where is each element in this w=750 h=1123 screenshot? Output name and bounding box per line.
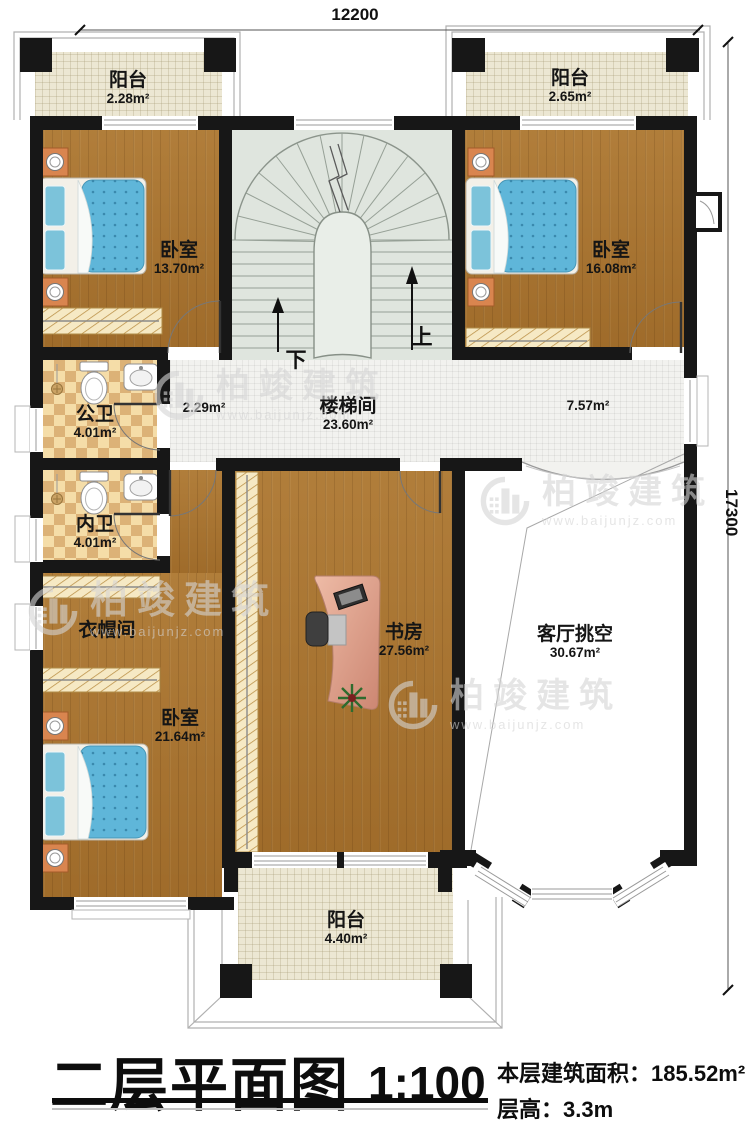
- window: [72, 897, 190, 919]
- window: [520, 116, 636, 130]
- bed-icon: [40, 744, 148, 840]
- title-underline-thin: [52, 1108, 488, 1110]
- title-underline-thick: [52, 1098, 488, 1103]
- room-label-balcony-bottom: 阳台 4.40m²: [325, 910, 368, 946]
- dimension-width: 12200: [331, 5, 378, 25]
- floor-area-value: 185.52m²: [651, 1061, 745, 1086]
- room-label-hall-west: 2.29m²: [183, 400, 226, 415]
- room-label-bedroom-tr: 卧室 16.08m²: [586, 240, 636, 276]
- sliding-door: [252, 852, 428, 868]
- sink-icon: [124, 474, 158, 500]
- plant-icon: [338, 684, 366, 712]
- room-label-stairwell: 楼梯间 23.60m²: [319, 396, 376, 432]
- chair-back-icon: [328, 615, 346, 645]
- window: [15, 406, 43, 452]
- dimension-lines: [75, 25, 733, 995]
- door-arc: [630, 302, 681, 353]
- floor-height-label: 层高：: [497, 1097, 563, 1122]
- toilet-icon: [80, 472, 108, 514]
- door-arc: [114, 404, 160, 450]
- room-label-bath-public: 公卫 4.01m²: [74, 404, 117, 440]
- window: [684, 376, 708, 446]
- furniture: [36, 148, 590, 872]
- floor-height-value: 3.3m: [563, 1097, 613, 1122]
- door-arc: [114, 514, 160, 560]
- room-label-hall-east: 7.57m²: [567, 398, 610, 413]
- dimension-height: 17300: [721, 489, 741, 536]
- room-label-bath-private: 内卫 4.01m²: [74, 514, 117, 550]
- plan-linework: [0, 0, 750, 1123]
- window: [15, 604, 43, 650]
- chair-icon: [306, 612, 328, 646]
- room-label-bedroom-bl: 卧室 21.64m²: [155, 708, 205, 744]
- floor-drain-icon: [52, 364, 63, 505]
- stair-center-island: [314, 212, 371, 358]
- floor-area-info: 本层建筑面积：185.52m²: [497, 1056, 745, 1088]
- door-arc: [168, 301, 220, 353]
- sink-icon: [124, 364, 158, 390]
- stair-up-label: 上: [412, 321, 433, 351]
- room-label-bedroom-tl: 卧室 13.70m²: [154, 240, 204, 276]
- room-label-living-void: 客厅挑空 30.67m²: [537, 624, 613, 660]
- balcony-railings: [14, 26, 710, 1028]
- room-label-balcony-tr: 阳台 2.65m²: [549, 68, 592, 104]
- room-label-balcony-tl: 阳台 2.28m²: [107, 70, 150, 106]
- floor-area-label: 本层建筑面积：: [497, 1061, 651, 1086]
- room-label-cloakroom: 衣帽间: [78, 620, 135, 641]
- bed-icon: [40, 178, 146, 274]
- window: [294, 116, 394, 130]
- bed-icon: [466, 178, 578, 274]
- toilet-icon: [80, 362, 108, 404]
- floor-plan-canvas: 12200 17300 阳台 2.28m² 阳台 2.65m² 卧室 13.70…: [0, 0, 750, 1123]
- room-label-study: 书房 27.56m²: [379, 622, 429, 658]
- wall-niche: [694, 194, 720, 230]
- stair-down-label: 下: [286, 344, 307, 374]
- doors: [114, 301, 681, 560]
- door-arc: [400, 471, 440, 513]
- floor-height-info: 层高：3.3m: [497, 1092, 613, 1123]
- door-arc: [170, 470, 216, 516]
- bay-window: [470, 862, 672, 907]
- window: [15, 516, 43, 562]
- desk-icon: [306, 576, 380, 712]
- stair-break-line: [329, 144, 348, 212]
- bookshelf-icon: [236, 472, 258, 852]
- window: [102, 116, 198, 130]
